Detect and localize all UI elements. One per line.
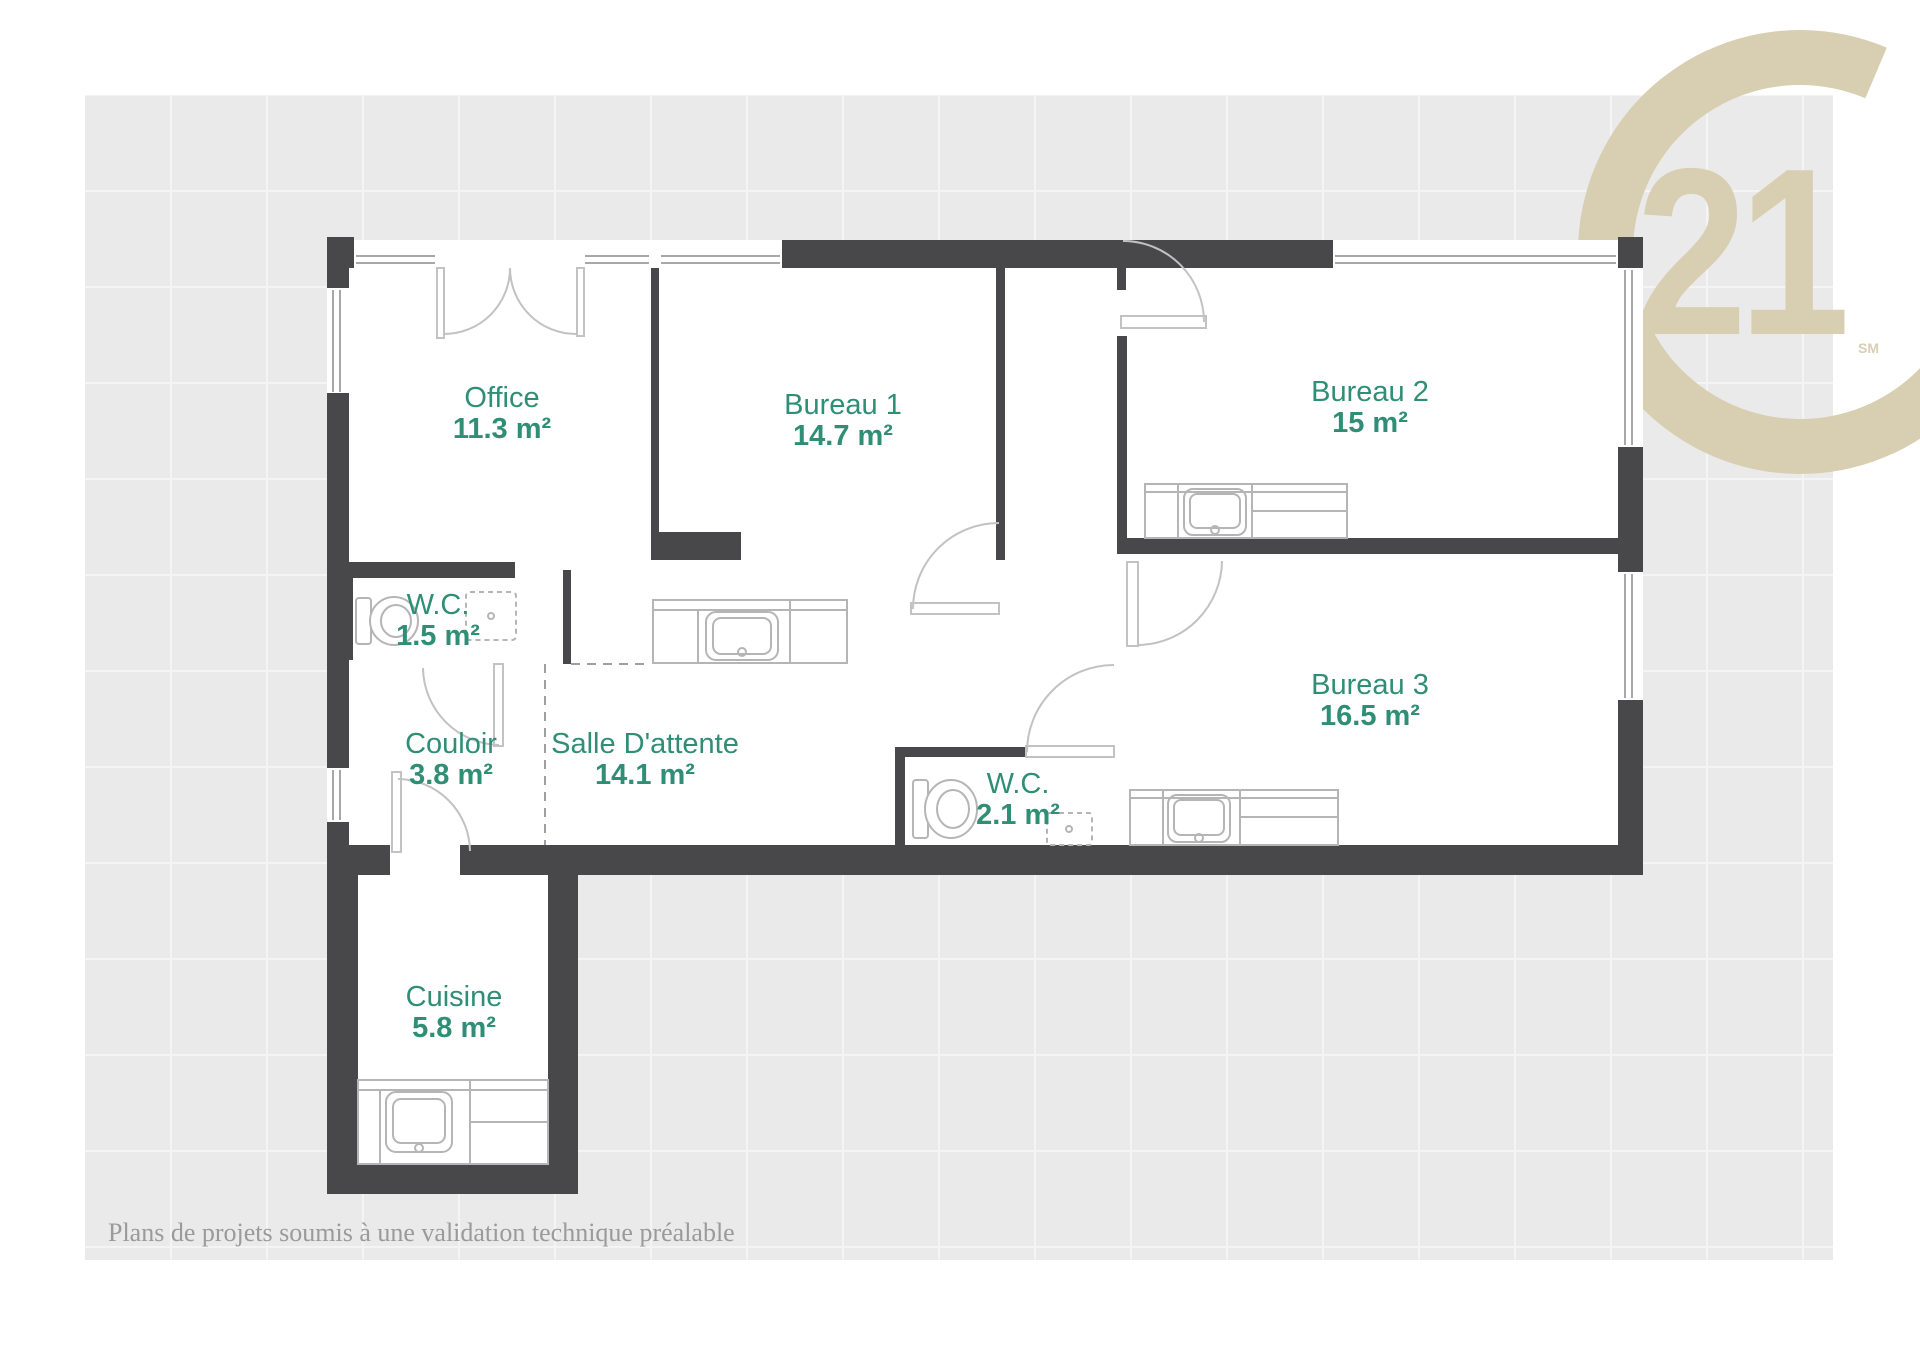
fixtures: [356, 484, 1347, 1164]
floorplan-linework: [0, 0, 1920, 1357]
room-label-bureau3: Bureau 3 16.5 m²: [1311, 670, 1429, 732]
window-lines: [333, 256, 1632, 820]
room-label-bureau1: Bureau 1 14.7 m²: [784, 390, 902, 452]
room-label-cuisine: Cuisine 5.8 m²: [406, 982, 503, 1044]
disclaimer-text: Plans de projets soumis à une validation…: [108, 1218, 735, 1248]
room-label-wc2: W.C. 2.1 m²: [976, 769, 1060, 831]
room-label-couloir: Couloir 3.8 m²: [405, 729, 497, 791]
room-label-office: Office 11.3 m²: [453, 383, 551, 445]
floorplan-page: 21 SM: [0, 0, 1920, 1357]
room-label-wc1: W.C. 1.5 m²: [396, 590, 480, 652]
room-label-bureau2: Bureau 2 15 m²: [1311, 377, 1429, 439]
door-arcs: [392, 241, 1222, 852]
room-label-salle-dattente: Salle D'attente 14.1 m²: [551, 729, 739, 791]
